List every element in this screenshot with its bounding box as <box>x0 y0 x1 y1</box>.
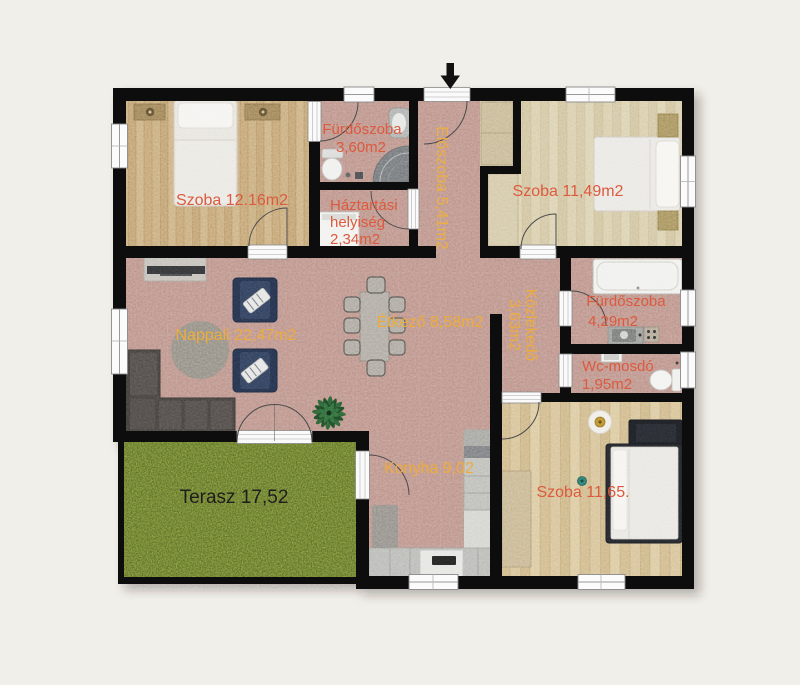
svg-text:4,29m2: 4,29m2 <box>588 313 638 330</box>
svg-text:3,60m2: 3,60m2 <box>336 139 386 156</box>
svg-text:Étkező 8,58m2: Étkező 8,58m2 <box>377 312 484 331</box>
svg-text:Nappali 22,47m2: Nappali 22,47m2 <box>176 327 297 344</box>
svg-text:1,95m2: 1,95m2 <box>582 376 632 393</box>
svg-text:helyiség: helyiség <box>330 214 385 231</box>
svg-text:Szoba 12.16m2: Szoba 12.16m2 <box>176 192 288 209</box>
svg-text:Terasz 17,52: Terasz 17,52 <box>180 487 289 508</box>
svg-text:Szoba 11,49m2: Szoba 11,49m2 <box>513 183 624 200</box>
svg-text:Előszoba 5,41m2: Előszoba 5,41m2 <box>433 126 450 250</box>
svg-text:Szoba 11,65.: Szoba 11,65. <box>536 484 629 501</box>
svg-text:Fürdőszoba: Fürdőszoba <box>586 293 666 310</box>
svg-text:Konyha 9,02: Konyha 9,02 <box>384 460 474 477</box>
svg-text:2,34m2: 2,34m2 <box>330 231 380 248</box>
svg-text:Közlekedő3,63m2: Közlekedő3,63m2 <box>506 289 540 361</box>
svg-text:Wc-mosdó: Wc-mosdó <box>582 358 654 375</box>
svg-text:Háztartási: Háztartási <box>330 197 398 214</box>
svg-text:Fürdőszoba: Fürdőszoba <box>322 121 402 138</box>
